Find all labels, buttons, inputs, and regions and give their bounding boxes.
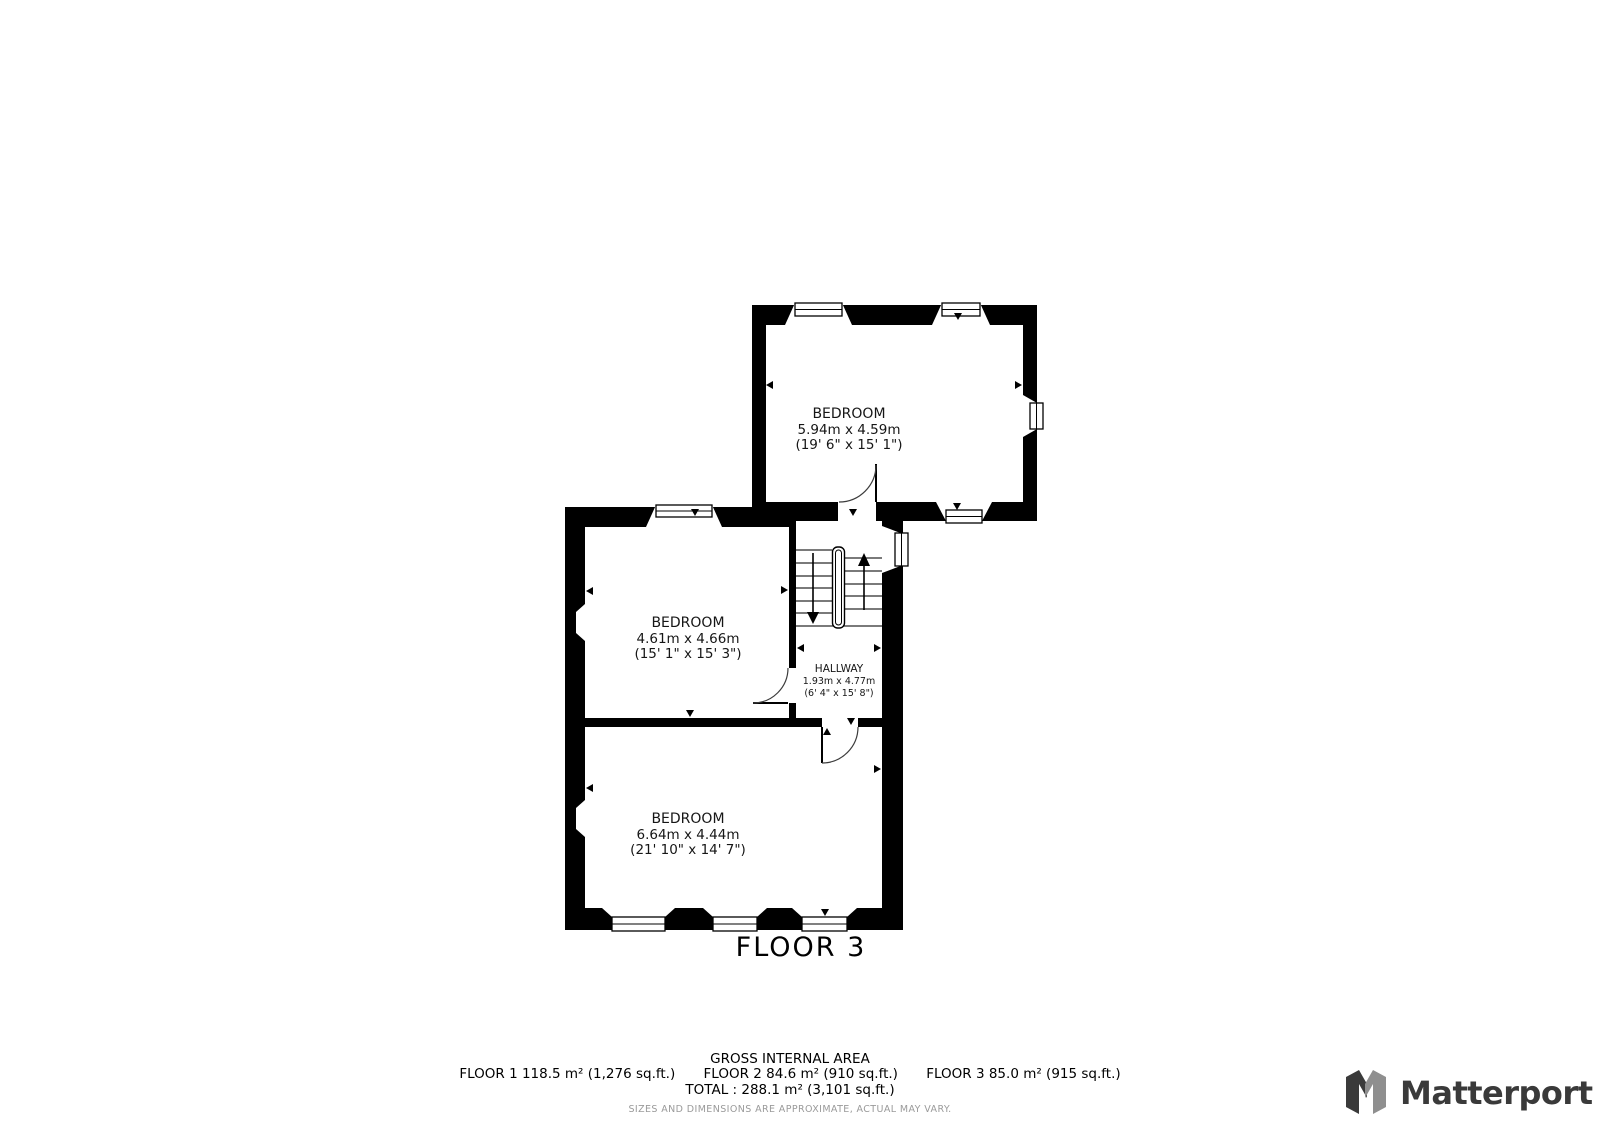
room-dimensions-imperial: (6' 4" x 15' 8") bbox=[804, 688, 873, 699]
total-area: TOTAL : 288.1 m² (3,101 sq.ft.) bbox=[0, 1083, 1580, 1098]
door-opening bbox=[788, 668, 797, 703]
room-name: HALLWAY bbox=[815, 663, 864, 675]
room-dimensions-imperial: (15' 1" x 15' 3") bbox=[634, 646, 741, 662]
gross-area-title: GROSS INTERNAL AREA bbox=[0, 1052, 1580, 1067]
room-label-bedroom-top: BEDROOM 5.94m x 4.59m (19' 6" x 15' 1") bbox=[795, 406, 902, 453]
floor3-area: FLOOR 3 85.0 m² (915 sq.ft.) bbox=[926, 1067, 1120, 1082]
door-opening bbox=[838, 501, 876, 522]
room-dimensions-metric: 5.94m x 4.59m bbox=[798, 422, 901, 438]
floor-plan-canvas: BEDROOM 5.94m x 4.59m (19' 6" x 15' 1") … bbox=[0, 0, 1600, 1131]
disclaimer: SIZES AND DIMENSIONS ARE APPROXIMATE, AC… bbox=[0, 1102, 1580, 1117]
floor1-area: FLOOR 1 118.5 m² (1,276 sq.ft.) bbox=[459, 1067, 675, 1082]
window-recess bbox=[703, 908, 767, 917]
area-summary: GROSS INTERNAL AREA FLOOR 1 118.5 m² (1,… bbox=[0, 1052, 1580, 1117]
room-label-bedroom-bottom: BEDROOM 6.64m x 4.44m (21' 10" x 14' 7") bbox=[630, 811, 746, 858]
door-arc bbox=[839, 465, 876, 502]
floor-title: FLOOR 3 bbox=[736, 932, 867, 963]
floor-areas-line: FLOOR 1 118.5 m² (1,276 sq.ft.) FLOOR 2 … bbox=[0, 1067, 1580, 1082]
room-dimensions-metric: 4.61m x 4.66m bbox=[637, 631, 740, 647]
room-label-bedroom-mid: BEDROOM 4.61m x 4.66m (15' 1" x 15' 3") bbox=[634, 615, 741, 662]
matterport-wordmark: Matterport bbox=[1400, 1074, 1592, 1112]
room-name: BEDROOM bbox=[812, 406, 885, 422]
matterport-logo: Matterport bbox=[1345, 1069, 1592, 1116]
floorplan-page: BEDROOM 5.94m x 4.59m (19' 6" x 15' 1") … bbox=[0, 0, 1600, 1131]
room-dimensions-metric: 6.64m x 4.44m bbox=[637, 827, 740, 843]
room-dimensions-imperial: (19' 6" x 15' 1") bbox=[795, 437, 902, 453]
stairs-up-arrow bbox=[858, 553, 870, 610]
room-label-hallway: HALLWAY 1.93m x 4.77m (6' 4" x 15' 8") bbox=[803, 663, 875, 699]
room-dimensions-imperial: (21' 10" x 14' 7") bbox=[630, 842, 746, 858]
room-name: BEDROOM bbox=[651, 811, 724, 827]
door-arc bbox=[753, 668, 788, 703]
room-dimensions-metric: 1.93m x 4.77m bbox=[803, 676, 875, 687]
room-name: BEDROOM bbox=[651, 615, 724, 631]
window-recess bbox=[602, 908, 675, 917]
floor2-area: FLOOR 2 84.6 m² (910 sq.ft.) bbox=[704, 1067, 898, 1082]
staircase bbox=[796, 547, 882, 628]
matterport-logo-icon bbox=[1345, 1069, 1387, 1116]
